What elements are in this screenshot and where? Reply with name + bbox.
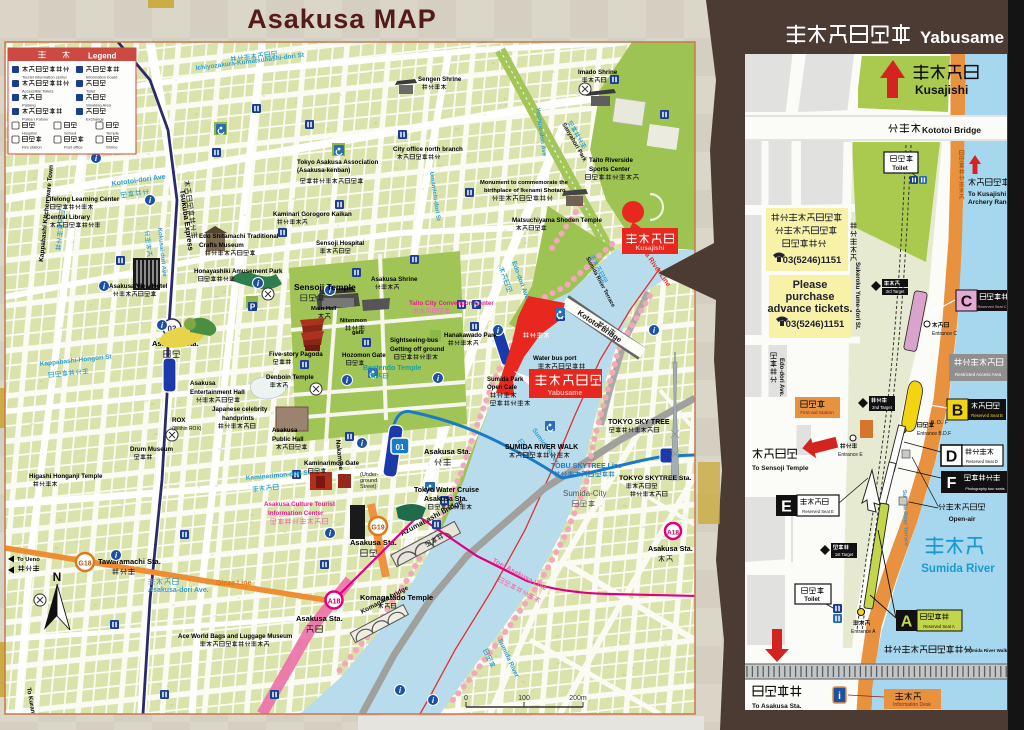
svg-text:200m: 200m [569,695,587,702]
svg-text:Asakusa Culture Tourist: Asakusa Culture Tourist [264,501,335,508]
svg-text:Edo Shitamachi Traditional: Edo Shitamachi Traditional [199,233,279,240]
svg-text:F: F [947,475,957,492]
svg-text:Open Cafe: Open Cafe [487,385,518,391]
svg-text:A18: A18 [667,530,679,537]
svg-text:Information board: Information board [86,75,117,80]
svg-text:Kaminarimon Gate: Kaminarimon Gate [304,460,360,467]
svg-text:Reserved Seat C: Reserved Seat C [978,305,1007,309]
svg-text:purchase: purchase [786,291,835,303]
svg-text:To Asakusa Sta.: To Asakusa Sta. [752,703,802,710]
svg-text:Asakusa-dori Ave.: Asakusa-dori Ave. [148,587,209,594]
svg-text:Asakusa View Hotel: Asakusa View Hotel [109,283,168,290]
svg-text:Restricted Access Area: Restricted Access Area [955,372,1002,377]
svg-text:Five-story Pagoda: Five-story Pagoda [269,351,323,358]
svg-text:To Sensoji Temple: To Sensoji Temple [752,465,809,472]
svg-text:Exchange: Exchange [86,117,105,122]
svg-text:Denboin Temple: Denboin Temple [266,374,314,381]
svg-text:Honayashiki Amusement Park: Honayashiki Amusement Park [194,268,283,275]
svg-text:Monument to commemorate the: Monument to commemorate the [480,180,569,186]
svg-text:03(5246)1151: 03(5246)1151 [786,319,845,330]
svg-text:Drum Museum: Drum Museum [130,446,173,453]
svg-text:Legend: Legend [88,52,117,61]
svg-text:G19: G19 [371,525,384,532]
svg-text:Kototoi Bridge: Kototoi Bridge [922,125,981,135]
svg-text:P: P [250,303,256,312]
svg-text:Toilet: Toilet [86,89,96,94]
svg-text:B: B [952,403,964,420]
svg-text:Sumida-City: Sumida-City [563,489,607,498]
svg-text:Asakusa MAP: Asakusa MAP [247,4,437,34]
svg-text:1st Target: 1st Target [835,552,854,557]
svg-text:Police / Koban: Police / Koban [22,117,48,122]
svg-text:First-aid Station: First-aid Station [800,410,834,416]
svg-text:Tawaramachi Sta.: Tawaramachi Sta. [98,557,161,566]
svg-text:Sumida Park: Sumida Park [487,377,524,383]
svg-text:Central Library: Central Library [46,214,91,221]
svg-text:Kusajishi: Kusajishi [636,245,665,252]
svg-text:Reserved Seat A: Reserved Seat A [923,624,955,629]
svg-text:Photography tour seats: Photography tour seats [965,487,1004,491]
svg-text:Higashi Honganji Temple: Higashi Honganji Temple [29,473,103,480]
svg-text:birthplace of Ikenami Shotaro: birthplace of Ikenami Shotaro [484,188,566,194]
svg-text:Ace World Bags and Luggage Mus: Ace World Bags and Luggage Museum [178,633,293,640]
svg-text:Sightseeing-bus: Sightseeing-bus [390,337,439,344]
svg-text:(Within ROX): (Within ROX) [172,426,202,432]
svg-text:Yabusame: Yabusame [548,390,583,397]
svg-text:Taito City Convention Center: Taito City Convention Center [409,300,494,307]
svg-text:Tokyo Water Cruise: Tokyo Water Cruise [414,487,479,494]
svg-text:To Ueno: To Ueno [17,557,40,563]
svg-text:Sensoji Hospital: Sensoji Hospital [316,240,364,247]
svg-text:Sports Center: Sports Center [589,166,631,173]
svg-text:ROX: ROX [172,417,186,424]
svg-text:Tourist information center: Tourist information center [22,75,68,80]
svg-text:Shrine: Shrine [106,145,118,150]
svg-text:i: i [838,691,841,702]
svg-text:Public Hall: Public Hall [272,436,304,443]
svg-text:3rd Target: 3rd Target [886,289,906,294]
svg-text:Water bus port: Water bus port [533,355,576,362]
svg-text:Entertainment Hall: Entertainment Hall [190,389,245,396]
svg-text:Entrance E: Entrance E [838,452,863,458]
svg-text:TOBU SKYTREE Line: TOBU SKYTREE Line [551,463,622,470]
svg-text:100: 100 [518,695,530,702]
svg-text:Taito Riverside: Taito Riverside [589,157,633,164]
svg-text:Sensoji Temple: Sensoji Temple [294,282,356,292]
svg-text:Bentendo Temple: Bentendo Temple [363,365,421,372]
svg-text:Nitenmon: Nitenmon [340,318,367,324]
svg-text:Komagatado Temple: Komagatado Temple [360,593,433,602]
svg-text:School: School [64,131,76,136]
svg-text:Reserved Seat E: Reserved Seat E [802,509,834,514]
svg-text:Sukeroku Yume-dori St.: Sukeroku Yume-dori St. [854,262,860,330]
svg-text:Asakusa Sta.: Asakusa Sta. [424,447,471,456]
svg-text:Parking: Parking [22,103,36,108]
svg-text:Open-air: Open-air [949,516,976,523]
svg-text:gate: gate [352,330,365,336]
svg-text:2nd Target: 2nd Target [872,405,893,410]
svg-text:Hozomon Gate: Hozomon Gate [342,352,386,359]
svg-text:Smoking Area: Smoking Area [86,103,112,108]
svg-text:C: C [961,294,973,311]
svg-text:Crafts Museum: Crafts Museum [199,242,244,249]
svg-text:Fire station: Fire station [22,145,42,150]
svg-text:Hospital: Hospital [22,131,37,136]
svg-text:City office north branch: City office north branch [393,146,463,153]
svg-text:advance tickets.: advance tickets. [768,303,853,315]
svg-text:B. D.. F: B. D.. F [931,420,948,426]
svg-text:Entrance A: Entrance A [851,629,876,635]
svg-text:Entrance C: Entrance C [932,331,957,337]
svg-text:Sengen Shrine: Sengen Shrine [418,76,462,83]
svg-text:Japanese celebrity: Japanese celebrity [212,406,268,413]
svg-text:Please: Please [793,279,828,291]
svg-text:TOKYO SKY TREE: TOKYO SKY TREE [608,419,670,426]
svg-text:Asakusa: Asakusa [190,380,216,387]
svg-text:Reserved Seat B: Reserved Seat B [971,413,1003,418]
svg-text:Ginza Line: Ginza Line [216,580,252,587]
svg-text:Getting off ground: Getting off ground [390,346,445,353]
svg-text:(Asakusa-kenban): (Asakusa-kenban) [297,167,350,174]
svg-text:Entrance B.D.F: Entrance B.D.F [917,431,951,437]
svg-text:Asakusa Shrine: Asakusa Shrine [371,276,418,283]
svg-text:Asakusa Sta.: Asakusa Sta. [424,496,468,503]
svg-text:01: 01 [396,443,405,452]
svg-text:Imado Shrine: Imado Shrine [578,69,618,76]
svg-text:G18: G18 [78,561,91,568]
svg-text:Temple: Temple [106,131,120,136]
svg-text:Kaminari Gorogoro Kaikan: Kaminari Gorogoro Kaikan [273,211,352,218]
svg-text:Sumida River Walk: Sumida River Walk [966,648,1008,653]
svg-text:Asakusa: Asakusa [272,427,298,434]
svg-text:handprints: handprints [222,415,255,422]
svg-text:Toilet: Toilet [892,166,908,172]
svg-text:Information Center: Information Center [268,510,324,517]
svg-text:Toilet: Toilet [804,597,820,603]
svg-text:Edo-dori Ave.: Edo-dori Ave. [778,358,784,397]
svg-text:Lifelong Learning Center: Lifelong Learning Center [46,196,120,203]
svg-text:Sumida River: Sumida River [921,563,995,575]
svg-text:Hanakawado Park: Hanakawado Park [444,332,498,339]
svg-text:Asakusa Sta.: Asakusa Sta. [648,544,693,553]
svg-text:A: A [901,614,913,631]
svg-text:Information Desk: Information Desk [893,702,931,708]
svg-text:Reserved Seat D: Reserved Seat D [966,459,998,464]
svg-text:SUMIDA RIVER WALK: SUMIDA RIVER WALK [505,444,578,451]
svg-text:Accessible Toilets: Accessible Toilets [22,89,54,94]
svg-text:Yabusame: Yabusame [920,28,1004,47]
svg-text:Asakusa Sta.: Asakusa Sta. [296,614,343,623]
svg-text:Street): Street) [360,484,377,490]
svg-text:TOKYO SKYTREE Sta.: TOKYO SKYTREE Sta. [619,475,692,482]
svg-text:A18: A18 [328,599,341,606]
svg-text:Post office: Post office [64,145,83,150]
svg-text:Matsuchiyama Shoden Temple: Matsuchiyama Shoden Temple [512,217,603,224]
svg-text:0: 0 [464,695,468,702]
svg-text:To Kusajishi: To Kusajishi [968,191,1006,198]
svg-text:Main Hall: Main Hall [311,306,337,312]
svg-text:03(5246)1151: 03(5246)1151 [783,255,842,266]
svg-text:E: E [781,499,792,516]
svg-text:Kusajishi: Kusajishi [915,83,968,97]
svg-text:D: D [946,449,958,466]
svg-text:Tokyo Asakusa Association: Tokyo Asakusa Association [297,159,378,166]
svg-text:N: N [53,570,62,584]
